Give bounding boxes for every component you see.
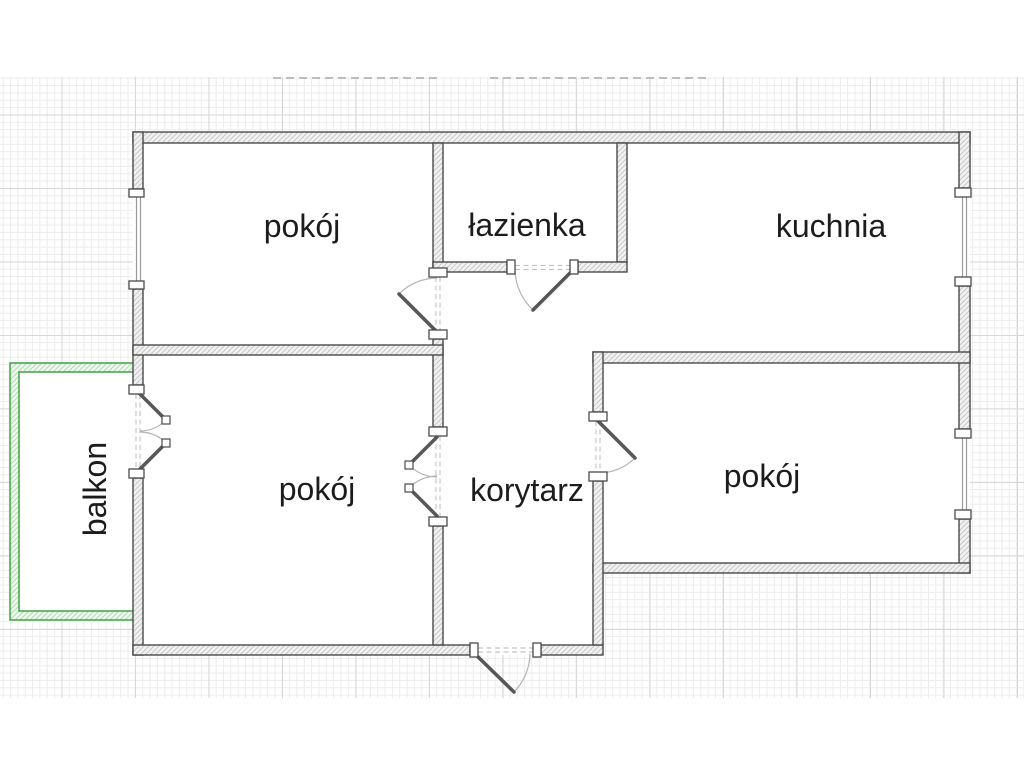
- window-room-top-left: [129, 189, 144, 289]
- room-label-pokoj-top-left: pokój: [264, 208, 341, 244]
- room-label-kuchnia: kuchnia: [776, 208, 887, 244]
- balcony-structure: [10, 363, 135, 620]
- room-label-balkon: balkon: [77, 442, 113, 536]
- floor-plan-drawing: pokój łazienka kuchnia pokój korytarz po…: [0, 0, 1024, 768]
- floor-plan-page: pokój łazienka kuchnia pokój korytarz po…: [0, 0, 1024, 768]
- room-label-pokoj-bottom-right: pokój: [724, 458, 801, 494]
- room-label-korytarz: korytarz: [470, 472, 584, 508]
- room-label-lazienka: łazienka: [468, 207, 586, 243]
- room-label-pokoj-bottom-left: pokój: [279, 471, 356, 507]
